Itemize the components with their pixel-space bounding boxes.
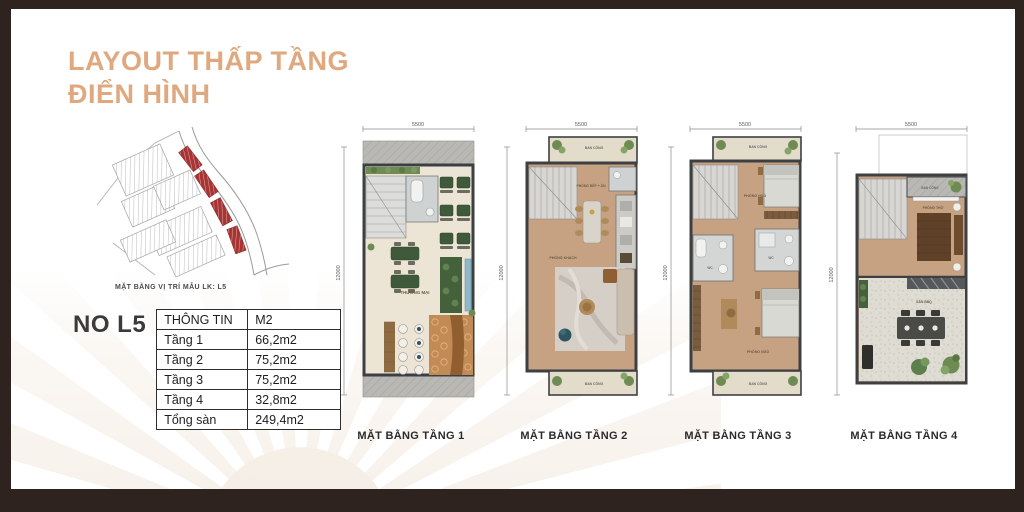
- dim-width: 5500: [739, 122, 751, 128]
- dim-width: 5500: [575, 122, 587, 128]
- dim-width: 5500: [905, 122, 917, 128]
- plan-caption-2: MẶT BẰNG TẦNG 2: [520, 430, 627, 442]
- room-label-wc2: WC: [768, 256, 774, 260]
- plan-caption-4: MẶT BẰNG TẦNG 4: [850, 430, 957, 442]
- floor-plan-1-drawing: 5500 12000: [336, 117, 486, 427]
- poster-frame: LAYOUT THẤP TẦNG ĐIỂN HÌNH: [0, 0, 1024, 512]
- room-label-living: PHÒNG KHÁCH: [549, 255, 577, 260]
- room-label-balcony-top: BAN CÔNG: [749, 144, 768, 149]
- page-title-line2: ĐIỂN HÌNH: [68, 78, 349, 111]
- room-label-bedroom1: PHÒNG NGỦ: [744, 193, 767, 198]
- room-label-balcony-top: BAN CÔNG: [585, 145, 604, 150]
- floor-plan-4: 5500 12000 BAN CÔNG PHÒNG THỜ: [829, 117, 979, 442]
- room-label-kitchen-dining: PHÒNG BẾP + ĂN: [576, 183, 606, 188]
- room-label-wc1: WC: [707, 266, 713, 270]
- floor-plan-3-drawing: 5500 12000 BAN CÔNG PHÒ: [663, 117, 813, 427]
- dim-height: 12000: [663, 265, 669, 280]
- floor-plan-2: 5500 12000 BAN CÔNG: [499, 117, 649, 442]
- floor-plan-2-drawing: 5500 12000 BAN CÔNG: [499, 117, 649, 427]
- room-label-bbq: SÂN BBQ: [916, 299, 932, 304]
- room-label-balcony-bottom: BAN CÔNG: [585, 381, 604, 386]
- dim-height: 12000: [829, 267, 835, 282]
- floor-plan-1: 5500 12000: [336, 117, 486, 442]
- page-title: LAYOUT THẤP TẦNG ĐIỂN HÌNH: [68, 45, 349, 111]
- room-label-balcony-top: BAN CÔNG: [921, 185, 939, 190]
- poster-canvas: LAYOUT THẤP TẦNG ĐIỂN HÌNH: [11, 9, 1015, 489]
- floor-plans-strip: 5500 12000: [11, 117, 1015, 457]
- plan-caption-1: MẶT BẰNG TẦNG 1: [357, 430, 464, 442]
- page-title-line1: LAYOUT THẤP TẦNG: [68, 45, 349, 78]
- room-label-balcony-bottom: BAN CÔNG: [749, 381, 768, 386]
- room-label-worship: PHÒNG THỜ: [923, 205, 944, 210]
- floor-plan-4-drawing: 5500 12000 BAN CÔNG PHÒNG THỜ: [829, 117, 979, 427]
- plan-caption-3: MẶT BẰNG TẦNG 3: [684, 430, 791, 442]
- room-label-bedroom2: PHÒNG NGỦ: [747, 349, 770, 354]
- dim-height: 12000: [336, 265, 342, 280]
- dim-height: 12000: [499, 265, 505, 280]
- room-label-commercial: THƯƠNG MẠI: [400, 290, 429, 295]
- dim-width: 5500: [412, 122, 424, 128]
- floor-plan-3: 5500 12000 BAN CÔNG PHÒ: [663, 117, 813, 442]
